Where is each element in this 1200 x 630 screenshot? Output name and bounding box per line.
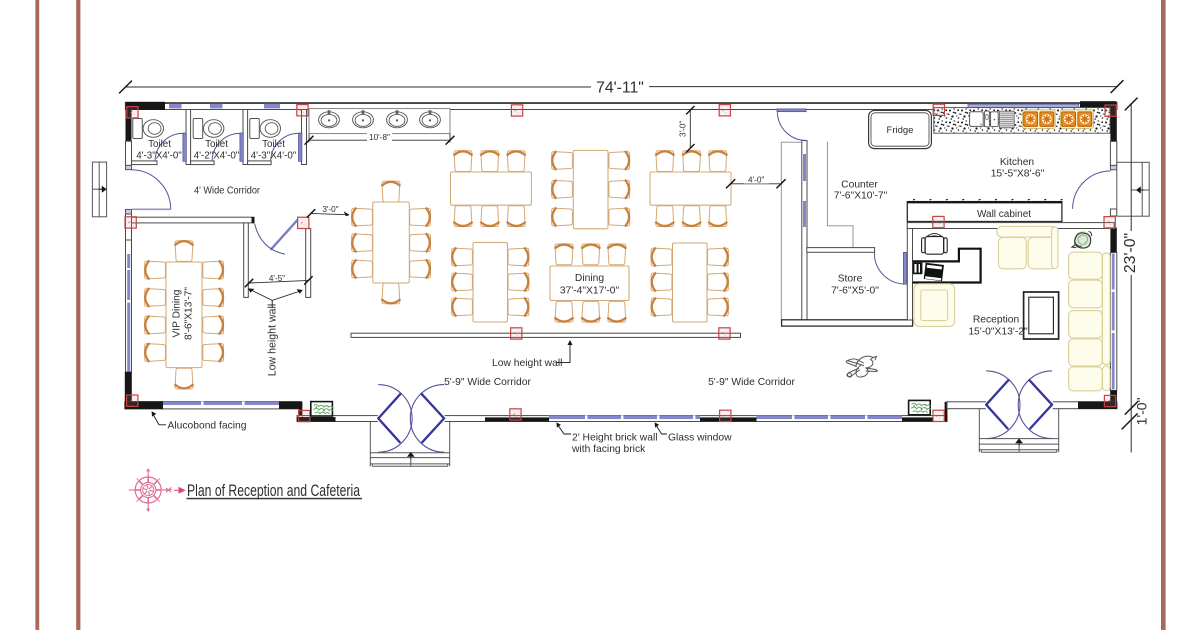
svg-text:74'-11": 74'-11" xyxy=(596,79,644,96)
svg-text:23'-0": 23'-0" xyxy=(1122,233,1139,273)
svg-text:Alucobond facing: Alucobond facing xyxy=(168,421,247,432)
svg-text:Low height wall: Low height wall xyxy=(266,304,278,376)
svg-text:15'-0"X13'-2": 15'-0"X13'-2" xyxy=(968,326,1028,337)
svg-text:4'-0": 4'-0" xyxy=(748,175,764,184)
svg-text:7'-6"X10'-7": 7'-6"X10'-7" xyxy=(834,190,888,201)
svg-text:7'-6"X5'-0": 7'-6"X5'-0" xyxy=(831,285,879,296)
svg-text:Toilet: Toilet xyxy=(262,139,285,150)
svg-text:with facing brick: with facing brick xyxy=(571,444,646,455)
svg-text:4'-3"X4'-0": 4'-3"X4'-0" xyxy=(251,150,297,161)
svg-text:3'-0": 3'-0" xyxy=(322,205,338,214)
svg-text:4' Wide Corridor: 4' Wide Corridor xyxy=(194,186,260,197)
svg-text:5'-9" Wide Corridor: 5'-9" Wide Corridor xyxy=(708,377,795,388)
svg-text:Toilet: Toilet xyxy=(205,139,228,150)
svg-text:Wall cabinet: Wall cabinet xyxy=(977,209,1031,220)
svg-text:Reception: Reception xyxy=(973,314,1020,325)
svg-text:15'-5"X8'-6": 15'-5"X8'-6" xyxy=(991,168,1045,179)
svg-text:Plan of Reception and Cafeteri: Plan of Reception and Cafeteria xyxy=(187,482,361,500)
svg-text:4'-3"X4'-0": 4'-3"X4'-0" xyxy=(136,150,182,161)
svg-text:Glass window: Glass window xyxy=(668,433,732,444)
svg-text:Toilet: Toilet xyxy=(148,139,171,150)
svg-text:Counter: Counter xyxy=(841,180,878,191)
svg-text:5'-9" Wide Corridor: 5'-9" Wide Corridor xyxy=(444,377,531,388)
svg-text:4'-5": 4'-5" xyxy=(269,274,285,283)
svg-text:37'-4"X17'-0": 37'-4"X17'-0" xyxy=(560,285,620,296)
svg-text:Dining: Dining xyxy=(575,273,604,284)
svg-text:1'-0": 1'-0" xyxy=(1133,397,1149,425)
svg-text:10'-8": 10'-8" xyxy=(369,133,390,142)
svg-text:8'-6"X13'-7": 8'-6"X13'-7" xyxy=(184,287,195,340)
svg-text:Low height wall: Low height wall xyxy=(492,358,562,369)
svg-text:4'-2"X4'-0": 4'-2"X4'-0" xyxy=(194,150,240,161)
svg-text:3'-0": 3'-0" xyxy=(679,121,688,137)
svg-text:VIP Dining: VIP Dining xyxy=(172,289,183,337)
svg-text:Kitchen: Kitchen xyxy=(1000,157,1035,168)
svg-text:Fridge: Fridge xyxy=(887,125,914,136)
svg-text:2' Height brick wall: 2' Height brick wall xyxy=(572,433,658,444)
svg-text:Store: Store xyxy=(838,273,863,284)
